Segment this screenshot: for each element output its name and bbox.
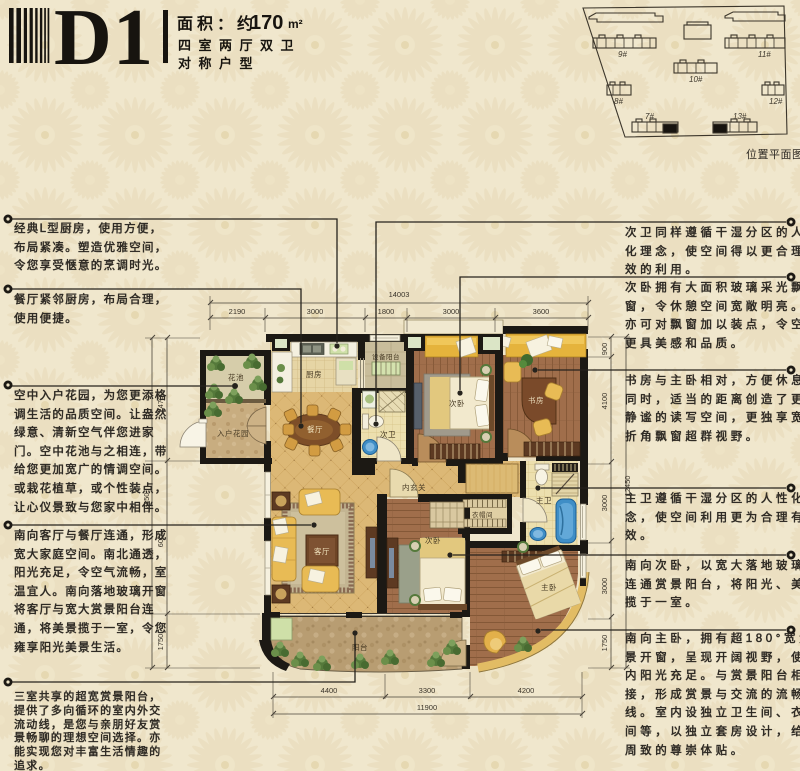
svg-text:书房: 书房 <box>528 395 544 405</box>
svg-text:厨房: 厨房 <box>306 369 322 379</box>
svg-text:14003: 14003 <box>389 290 410 299</box>
svg-text:面积：约: 面积：约 <box>177 14 257 33</box>
svg-text:1750: 1750 <box>600 635 609 652</box>
svg-text:9#: 9# <box>618 50 627 59</box>
svg-text:11#: 11# <box>758 50 771 59</box>
svg-text:内玄关: 内玄关 <box>402 482 426 492</box>
svg-text:客厅: 客厅 <box>314 546 330 556</box>
svg-text:2190: 2190 <box>229 307 246 316</box>
svg-text:衣帽间: 衣帽间 <box>472 510 493 519</box>
svg-text:对称户型: 对称户型 <box>178 56 260 71</box>
svg-text:3000: 3000 <box>307 307 324 316</box>
svg-text:4400: 4400 <box>321 686 338 695</box>
svg-text:8#: 8# <box>614 97 623 106</box>
svg-text:次卫: 次卫 <box>380 429 396 439</box>
svg-text:入户花园: 入户花园 <box>217 428 249 438</box>
svg-text:4200: 4200 <box>518 686 535 695</box>
svg-text:次卧: 次卧 <box>425 535 441 545</box>
svg-text:11900: 11900 <box>417 703 437 712</box>
svg-text:10#: 10# <box>689 75 703 84</box>
svg-text:3000: 3000 <box>600 578 609 595</box>
svg-text:170: 170 <box>250 12 283 34</box>
svg-text:花池: 花池 <box>228 372 244 382</box>
svg-text:位置平面图: 位置平面图 <box>746 147 800 161</box>
svg-text:m²: m² <box>288 17 303 31</box>
svg-text:3000: 3000 <box>600 495 609 512</box>
svg-text:13#: 13# <box>733 112 747 121</box>
svg-text:主卫: 主卫 <box>536 495 552 505</box>
svg-text:3000: 3000 <box>443 307 460 316</box>
svg-text:3600: 3600 <box>533 307 550 316</box>
svg-text:主卧: 主卧 <box>541 582 557 592</box>
svg-text:900: 900 <box>600 343 609 356</box>
svg-text:次卧: 次卧 <box>449 398 465 408</box>
svg-text:3300: 3300 <box>419 686 436 695</box>
svg-text:四室两厅双卫: 四室两厅双卫 <box>178 38 301 53</box>
svg-text:7#: 7# <box>645 112 654 121</box>
svg-text:D1: D1 <box>54 0 153 82</box>
svg-text:4100: 4100 <box>600 393 609 410</box>
svg-text:1800: 1800 <box>378 307 395 316</box>
svg-text:12#: 12# <box>769 97 783 106</box>
svg-text:餐厅: 餐厅 <box>307 425 323 434</box>
